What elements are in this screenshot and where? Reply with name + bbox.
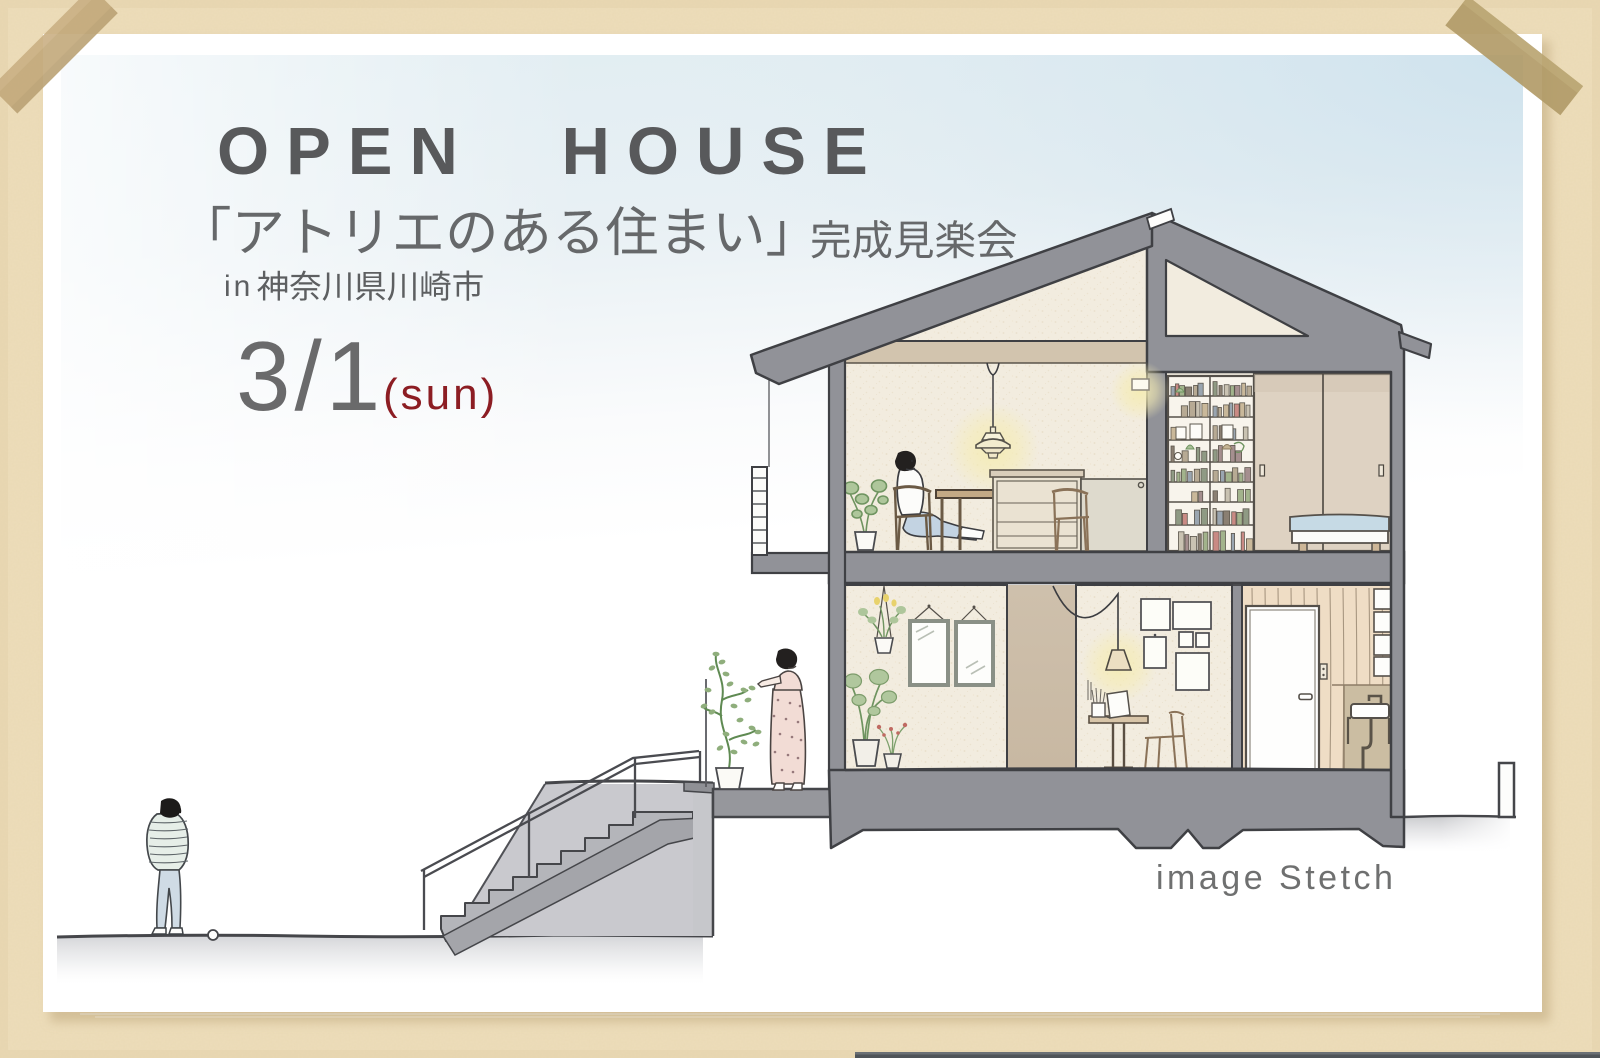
svg-text:3/1: 3/1 bbox=[236, 321, 384, 431]
svg-text:in: in bbox=[224, 270, 253, 303]
svg-text:image Stetch: image Stetch bbox=[1156, 859, 1396, 897]
svg-text:(sun): (sun) bbox=[383, 370, 498, 419]
svg-text:OPEN HOUSE: OPEN HOUSE bbox=[217, 114, 885, 189]
